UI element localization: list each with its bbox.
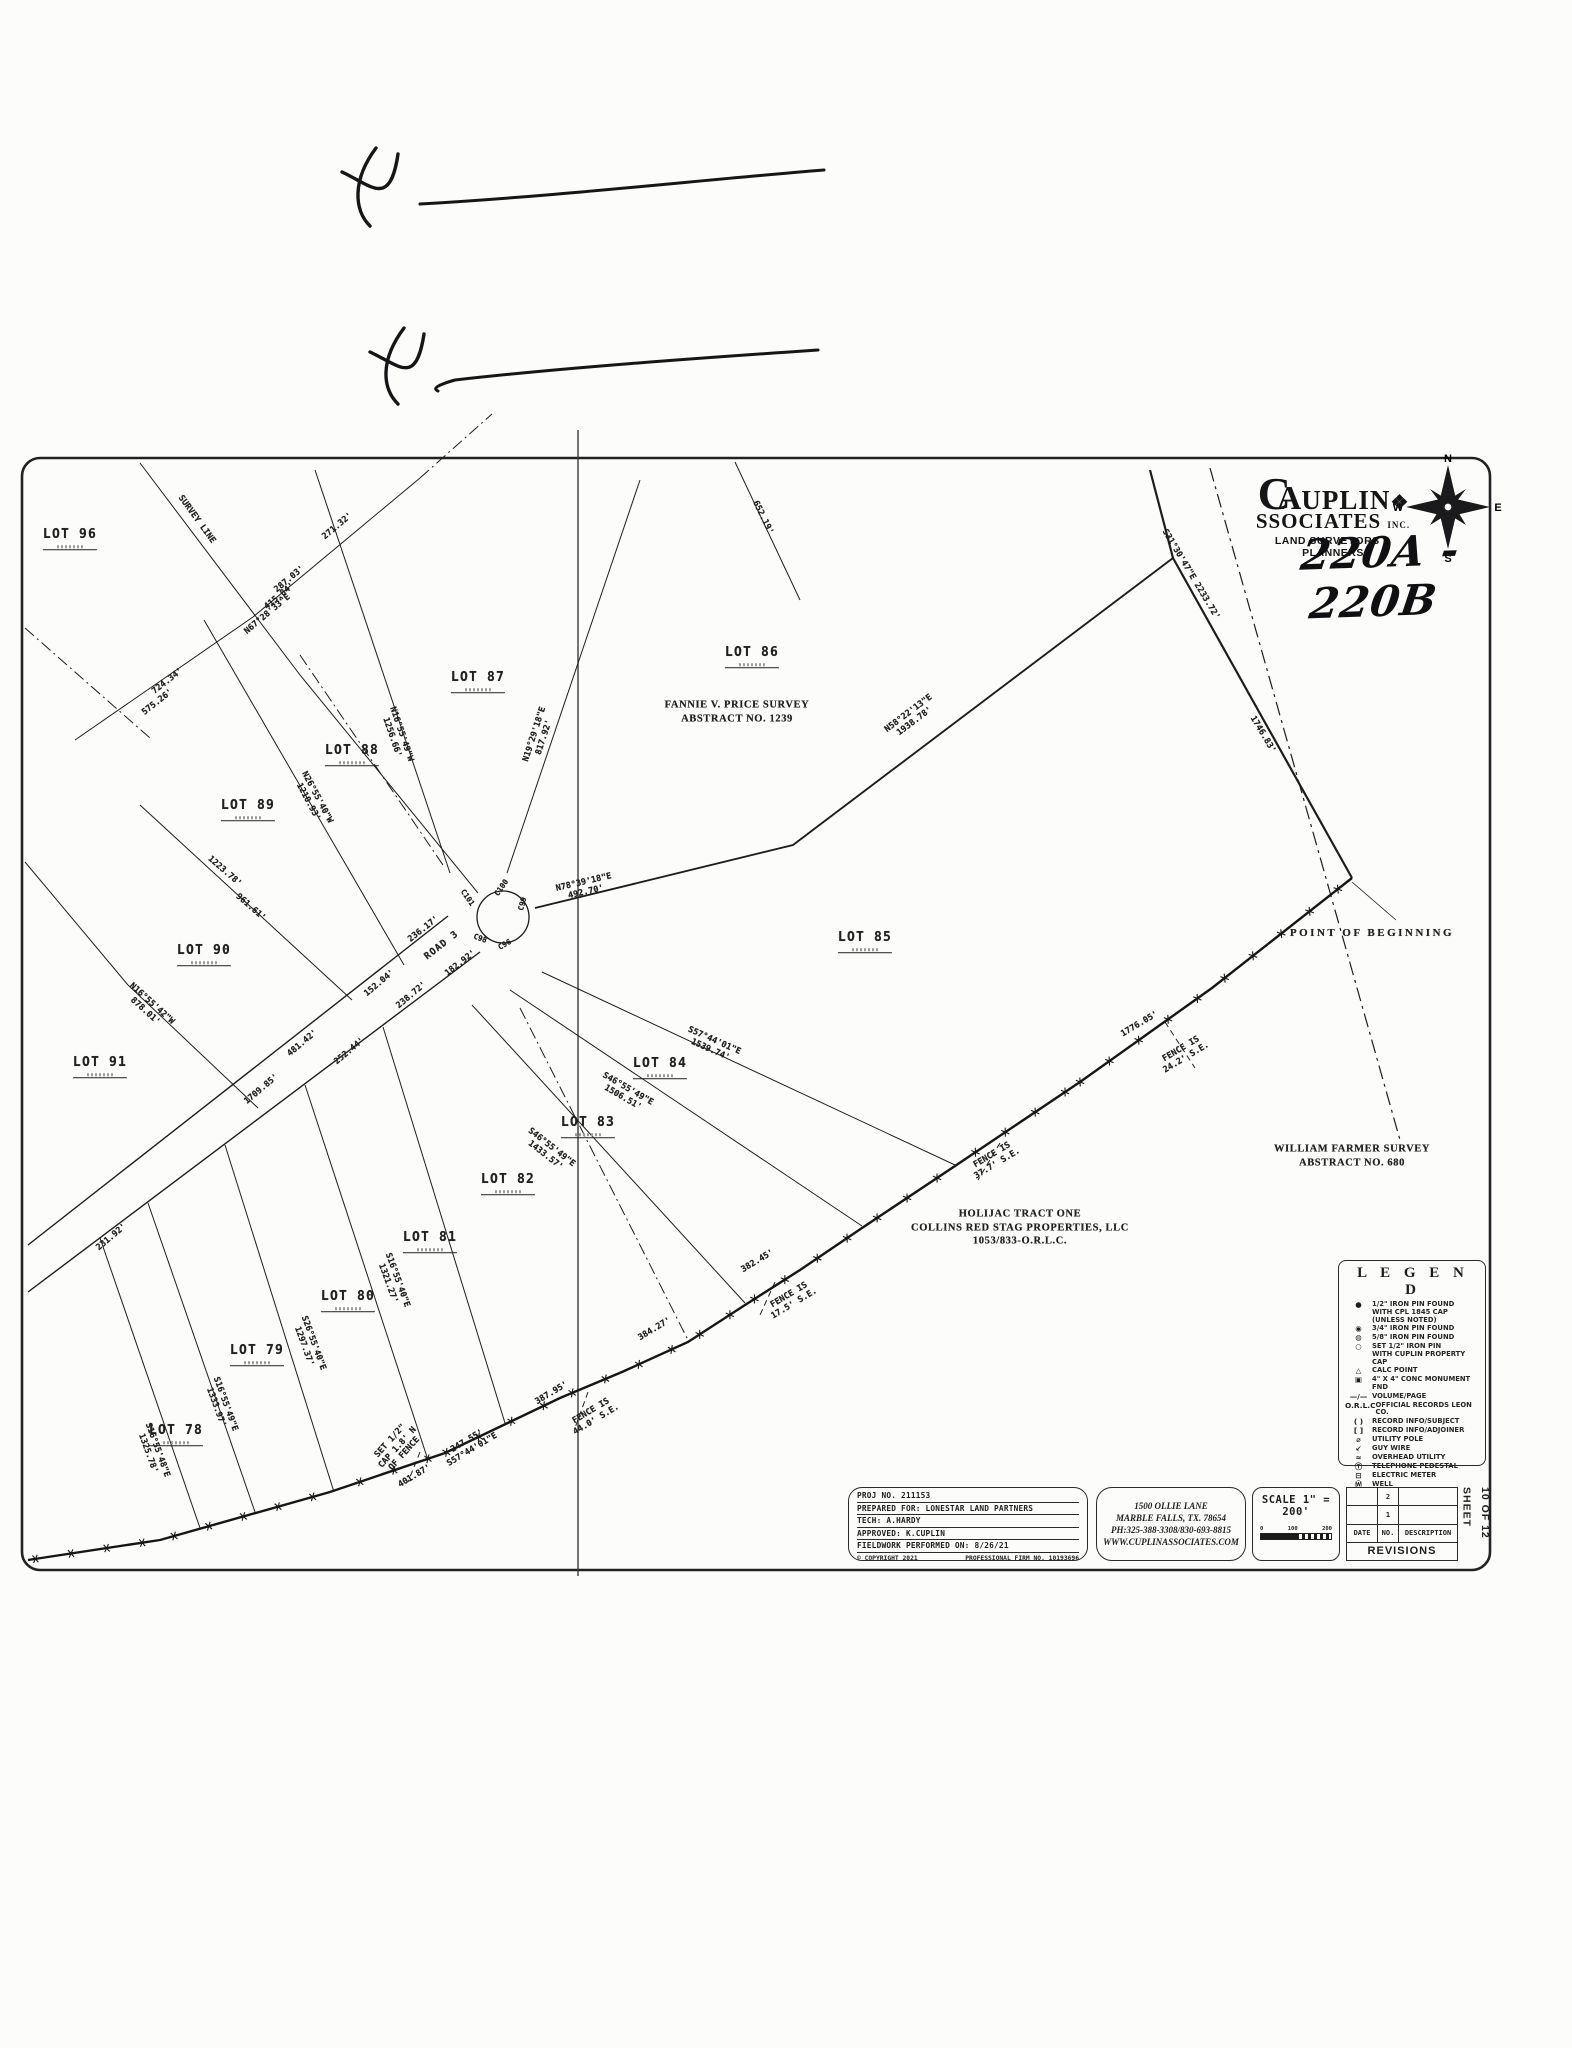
legend-item: ●1/2" IRON PIN FOUND WITH CPL 1845 CAP (… [1345, 1301, 1481, 1325]
legend-item-text: UTILITY POLE [1372, 1436, 1481, 1444]
address-box: 1500 OLLIE LANEMARBLE FALLS, TX. 78654PH… [1096, 1487, 1246, 1561]
revision-date-cell [1347, 1506, 1378, 1523]
scale-tick: 100 [1288, 1526, 1298, 1532]
legend-box: L E G E N D ●1/2" IRON PIN FOUND WITH CP… [1338, 1260, 1486, 1466]
signature-line [436, 350, 818, 391]
legend-item-text: 3/4" IRON PIN FOUND [1372, 1325, 1481, 1333]
project-info-box: PROJ NO. 211153PREPARED FOR: LONESTAR LA… [848, 1487, 1088, 1561]
signature-line [420, 170, 824, 204]
revisions-table: 2 1 DATE NO. DESCRIPTION REVISIONS [1346, 1487, 1458, 1561]
scale-box: SCALE 1" = 200' 0100200 [1252, 1487, 1340, 1561]
fence-tick-mark [1252, 951, 1253, 960]
compass-east-label: E [1494, 502, 1501, 514]
legend-item-text: CALC POINT [1372, 1367, 1481, 1375]
lot-line [140, 805, 352, 1000]
lot-line [507, 480, 640, 873]
lot-line [315, 470, 450, 873]
legend-symbol: ○ [1345, 1343, 1372, 1352]
survey-tie-line [420, 414, 492, 478]
plat-linework: N S E W [0, 0, 1572, 2048]
legend-item-text: VOLUME/PAGE [1372, 1393, 1481, 1401]
scale-bar [1260, 1533, 1332, 1540]
adjoiner-line [25, 628, 150, 738]
subject-boundary [535, 558, 1173, 908]
fence-tick-mark [1337, 885, 1338, 894]
scale-tick: 0 [1260, 1526, 1263, 1532]
fence-tick-mark [1281, 929, 1282, 938]
project-info-footer: © COPYRIGHT 2021 PROFESSIONAL FIRM NO. 1… [857, 1553, 1079, 1562]
legend-symbol: —/— [1345, 1393, 1372, 1402]
fence-tick-mark [1309, 907, 1310, 916]
lot-line [542, 972, 955, 1165]
project-info-rows: PROJ NO. 211153PREPARED FOR: LONESTAR LA… [857, 1490, 1079, 1553]
sheet-number-strip: SHEET 10 OF 12 [1461, 1487, 1490, 1561]
legend-item: ⌀UTILITY POLE [1345, 1436, 1481, 1445]
legend-item-text: OVERHEAD UTILITY [1372, 1454, 1481, 1462]
lot-line [225, 1145, 334, 1492]
road-edge [28, 916, 448, 1245]
lot-line-dashed [300, 655, 445, 868]
project-info-row: APPROVED: K.CUPLIN [857, 1528, 1079, 1541]
fence-tick-mark [478, 1432, 479, 1441]
revision-col-description: DESCRIPTION [1399, 1525, 1457, 1542]
legend-item: —/—VOLUME/PAGE [1345, 1393, 1481, 1402]
lot-line [305, 1085, 428, 1460]
revision-header-row: DATE NO. DESCRIPTION [1347, 1525, 1457, 1543]
lot-line [510, 990, 862, 1226]
handwritten-marks [342, 148, 824, 404]
fence-tick-mark [571, 1388, 573, 1397]
revision-row: 2 [1347, 1488, 1457, 1506]
project-info-row: PREPARED FOR: LONESTAR LAND PARTNERS [857, 1503, 1079, 1516]
scale-tick: 200 [1322, 1526, 1332, 1532]
legend-item-text: RECORD INFO/ADJOINER [1372, 1427, 1481, 1435]
legend-item: ▣4" X 4" CONC MONUMENT FND [1345, 1376, 1481, 1392]
legend-item: ○SET 1/2" IRON PIN WITH CUPLIN PROPERTY … [1345, 1343, 1481, 1367]
sheet-label: SHEET [1461, 1487, 1472, 1561]
fence-tick-mark [511, 1417, 512, 1426]
lot-line [253, 478, 420, 617]
scanned-plat-page: N S E W LOT 96LOT 87LOT 88LOT 89LOT 90LO… [0, 0, 1572, 2048]
fence-tick-mark [1224, 974, 1225, 983]
project-info-row: PROJ NO. 211153 [857, 1490, 1079, 1503]
pob-leader [1352, 882, 1396, 920]
revision-col-date: DATE [1347, 1525, 1378, 1542]
handwritten-plat-number: 220A - 220B [1255, 524, 1499, 631]
project-info-row: TECH: A.HARDY [857, 1515, 1079, 1528]
revision-desc-cell [1399, 1506, 1457, 1523]
legend-symbol: ▣ [1345, 1376, 1372, 1385]
legend-item-text: TELEPHONE PEDESTAL [1372, 1463, 1481, 1471]
legend-item-text: 1/2" IRON PIN FOUND WITH CPL 1845 CAP (U… [1372, 1301, 1481, 1325]
legend-item: ⊟ELECTRIC METER [1345, 1472, 1481, 1481]
lot-line [735, 462, 800, 600]
lot-lines [25, 414, 1400, 1528]
fence-tick-mark [638, 1360, 639, 1369]
legend-item-text: 5/8" IRON PIN FOUND [1372, 1334, 1481, 1342]
revision-row: 1 [1347, 1506, 1457, 1524]
address-line: 1500 OLLIE LANE [1097, 1500, 1245, 1512]
address-line: WWW.CUPLINASSOCIATES.COM [1097, 1536, 1245, 1548]
firm-number-text: PROFESSIONAL FIRM NO. 10193696 [965, 1555, 1079, 1562]
lot-line [100, 1238, 200, 1528]
subject-boundary [1150, 470, 1173, 558]
revision-col-no: NO. [1378, 1525, 1399, 1542]
scale-label: SCALE 1" = 200' [1260, 1494, 1332, 1518]
fence-tick-mark [605, 1375, 607, 1384]
revisions-title: REVISIONS [1347, 1543, 1457, 1560]
address-line: PH:325-388-3308/830-693-8815 [1097, 1524, 1245, 1536]
scale-tick-labels: 0100200 [1260, 1526, 1332, 1532]
lot-line [75, 617, 253, 740]
project-info-row: FIELDWORK PERFORMED ON: 8/26/21 [857, 1540, 1079, 1553]
logo-name: CAUPLIN❖ [1248, 476, 1418, 513]
legend-symbol: O.R.L.C [1345, 1402, 1376, 1411]
south-boundary-fence [28, 878, 1352, 1560]
lot-line [25, 862, 128, 985]
lot-line [472, 1005, 745, 1303]
revision-number-cell: 1 [1378, 1506, 1399, 1523]
legend-item: O.R.L.COFFICIAL RECORDS LEON CO. [1345, 1402, 1481, 1418]
legend-title: L E G E N D [1345, 1265, 1481, 1299]
copyright-text: © COPYRIGHT 2021 [857, 1555, 918, 1562]
lot-line [148, 1203, 255, 1512]
sheet-number: 10 OF 12 [1480, 1487, 1491, 1561]
address-line: MARBLE FALLS, TX. 78654 [1097, 1512, 1245, 1524]
legend-item-text: ELECTRIC METER [1372, 1472, 1481, 1480]
fence-tick-mark [543, 1401, 544, 1410]
lot-line-dashed [520, 1008, 688, 1340]
revision-desc-cell [1399, 1488, 1457, 1505]
compass-hub [1444, 503, 1452, 511]
lot-line [128, 985, 258, 1108]
cul-de-sac-circle [477, 891, 529, 943]
fenced-boundary-line [28, 878, 1352, 1563]
scale-bar-hatched [1296, 1534, 1331, 1539]
legend-symbol: ● [1345, 1301, 1372, 1310]
compass-north-label: N [1444, 453, 1452, 465]
revision-date-cell [1347, 1488, 1378, 1505]
legend-item-text: RECORD INFO/SUBJECT [1372, 1418, 1481, 1426]
legend-item-text: GUY WIRE [1372, 1445, 1481, 1453]
lot-line [204, 620, 404, 965]
scale-bar-solid [1261, 1534, 1296, 1539]
legend-item-text: 4" X 4" CONC MONUMENT FND [1372, 1376, 1481, 1392]
lot-line [383, 1027, 505, 1423]
fence-tick-mark [671, 1345, 672, 1354]
legend-item-text: OFFICIAL RECORDS LEON CO. [1376, 1402, 1481, 1418]
survey-line [140, 463, 478, 893]
revision-number-cell: 2 [1378, 1488, 1399, 1505]
legend-list: ●1/2" IRON PIN FOUND WITH CPL 1845 CAP (… [1345, 1301, 1481, 1507]
legend-item-text: SET 1/2" IRON PIN WITH CUPLIN PROPERTY C… [1372, 1343, 1481, 1367]
fence-tick-mark [446, 1448, 447, 1457]
